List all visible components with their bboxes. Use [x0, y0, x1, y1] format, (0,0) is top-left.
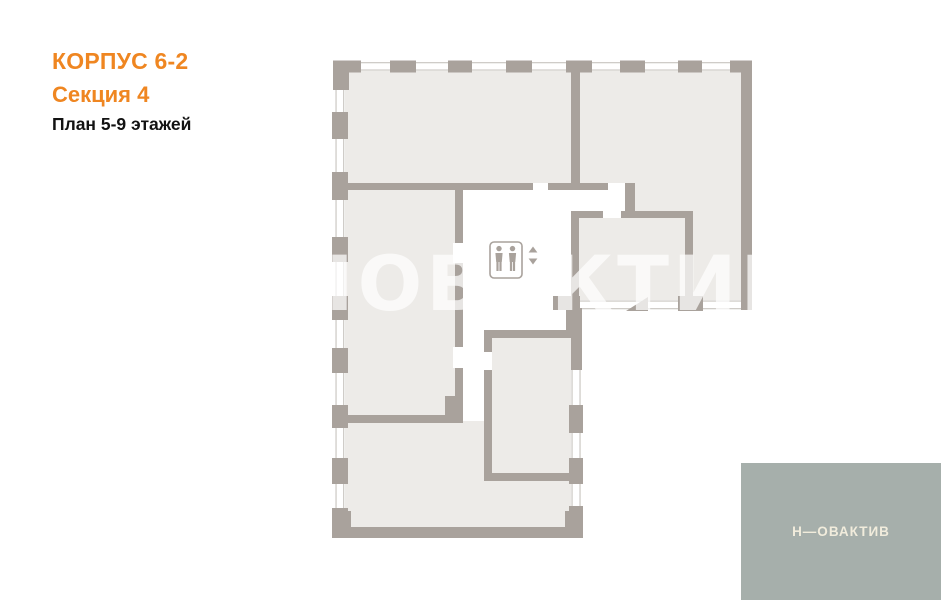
- logo-text: Н—ОВАКТИВ: [792, 524, 890, 539]
- page: КОРПУС 6-2 Секция 4 План 5-9 этажей: [0, 0, 941, 600]
- room-middle: [487, 333, 572, 478]
- watermark-text: НОВАКТИВ: [290, 239, 802, 328]
- elevator-cabin-outline: [490, 242, 522, 278]
- room-top-left: [344, 71, 578, 187]
- logo-box: Н—ОВАКТИВ: [741, 463, 941, 600]
